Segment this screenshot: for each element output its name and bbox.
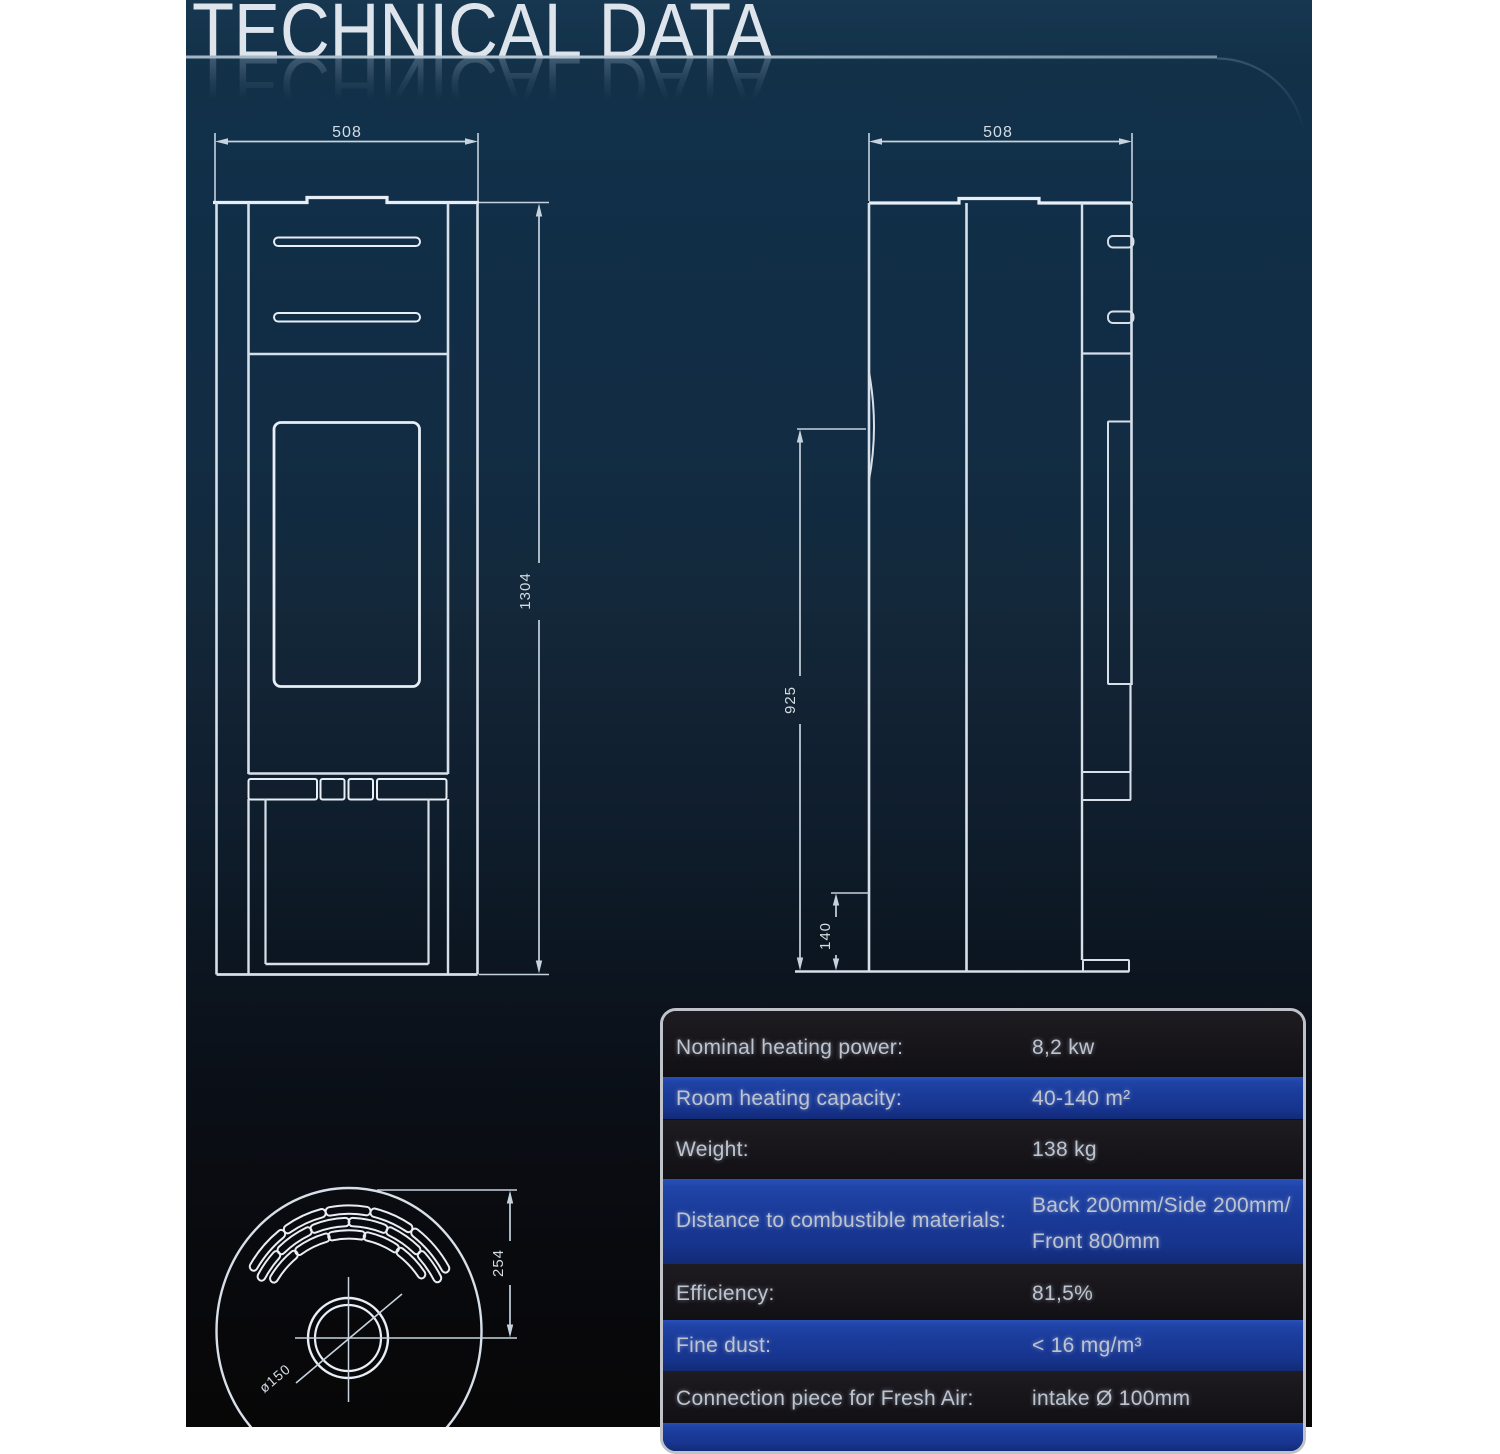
svg-text:508: 508 — [983, 124, 1013, 141]
svg-text:ø150: ø150 — [256, 1360, 294, 1395]
svg-text:508: 508 — [332, 124, 362, 141]
svg-text:140: 140 — [817, 922, 834, 950]
svg-text:1304: 1304 — [517, 572, 534, 609]
svg-text:925: 925 — [782, 686, 799, 714]
svg-text:254: 254 — [490, 1249, 507, 1277]
